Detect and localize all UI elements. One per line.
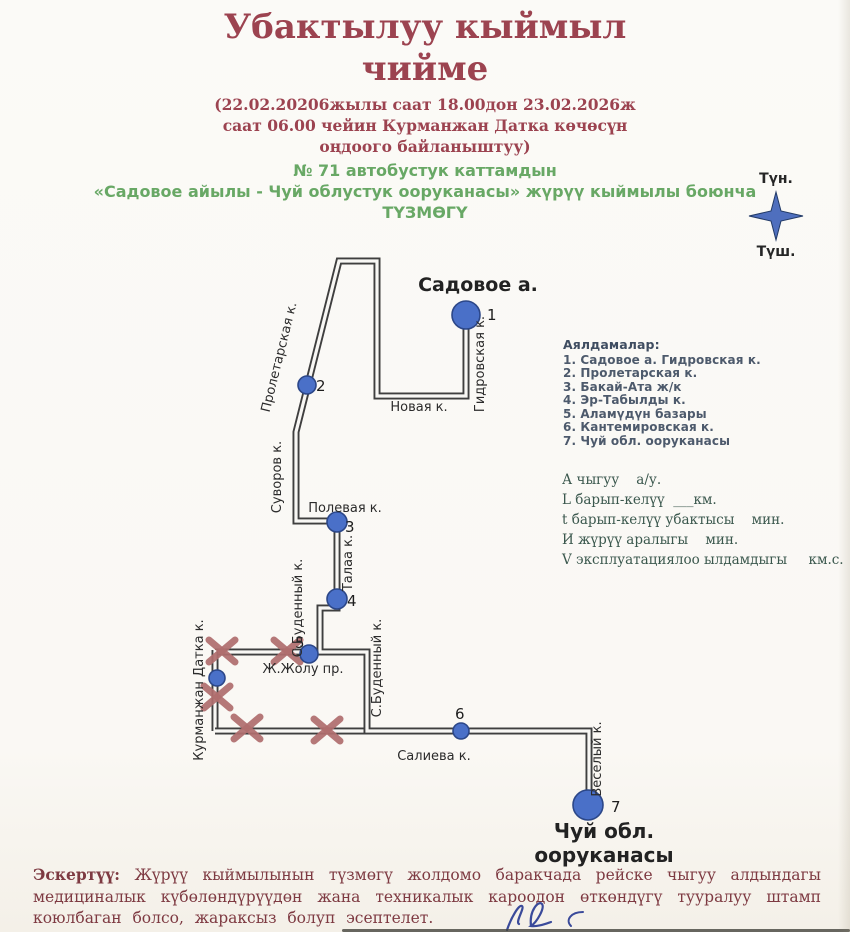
route-metrics: А чыгуу а/у.L барып-келүү ___км.t барып-… (562, 470, 844, 570)
stop-number: 4 (347, 592, 357, 610)
stop-number: 1 (487, 306, 497, 324)
street-label: Садовое а. (418, 274, 538, 296)
street-label: С.Буденный к. (291, 559, 306, 658)
street-label: Новая к. (390, 400, 447, 415)
legend-item: 6. Кантемировская к. (563, 421, 761, 435)
stop-marker (209, 670, 225, 686)
metric-line: L барып-келүү ___км. (562, 490, 844, 510)
legend-item: 3. Бакай-Ата ж/к (563, 381, 761, 395)
legend-item: 5. Аламүдүн базары (563, 408, 761, 422)
stop-number: 7 (611, 798, 621, 816)
street-label: С.Буденный к. (370, 619, 385, 718)
stops-legend-title: Аялдамалар: (563, 338, 761, 352)
footnote-label: Эскертүү: (33, 865, 120, 884)
footnote: Эскертүү: Жүрүү кыймылынын түзмөгү жолдо… (33, 864, 821, 930)
footnote-body: Жүрүү кыймылынын түзмөгү жолдомо баракча… (33, 866, 821, 927)
document-page: Убактылуу кыймыл чийме (22.02.20206жылы … (0, 0, 850, 932)
route-map: 1234567Садовое а.Гидровская к.Новая к.Пр… (0, 0, 850, 932)
stop-number: 6 (455, 705, 465, 723)
street-label: Чуй обл. (554, 819, 654, 843)
street-label: Гидровская к. (473, 316, 488, 412)
stop-number: 2 (316, 377, 326, 395)
stop-number: 3 (345, 518, 355, 536)
legend-item: 1. Садовое а. Гидровская к. (563, 354, 761, 368)
metric-line: А чыгуу а/у. (562, 470, 844, 490)
metric-line: V эксплуатациялоо ылдамдыгы км.с. (562, 550, 844, 570)
stop-marker (298, 376, 316, 394)
street-label: Веселый к. (590, 721, 605, 796)
stops-legend: Аялдамалар: 1. Садовое а. Гидровская к.2… (563, 338, 761, 448)
street-label: Суворов к. (270, 441, 285, 513)
street-label: Салиева к. (397, 749, 471, 764)
street-label: Курманжан Датка к. (192, 619, 207, 760)
legend-item: 4. Эр-Табылды к. (563, 394, 761, 408)
street-label: Пролетарская к. (259, 301, 301, 414)
street-label: Талаа к. (341, 535, 356, 592)
legend-item: 2. Пролетарская к. (563, 367, 761, 381)
signature-ink (495, 896, 615, 932)
metric-line: И жүрүү аралыгы мин. (562, 530, 844, 550)
metric-line: t барып-келүү убактысы мин. (562, 510, 844, 530)
stops-legend-items: 1. Садовое а. Гидровская к.2. Пролетарск… (563, 354, 761, 449)
legend-item: 7. Чуй обл. ооруканасы (563, 435, 761, 449)
street-label: Ж.Жолу пр. (262, 662, 343, 677)
stop-marker (453, 723, 469, 739)
street-label: Полевая к. (308, 501, 382, 516)
